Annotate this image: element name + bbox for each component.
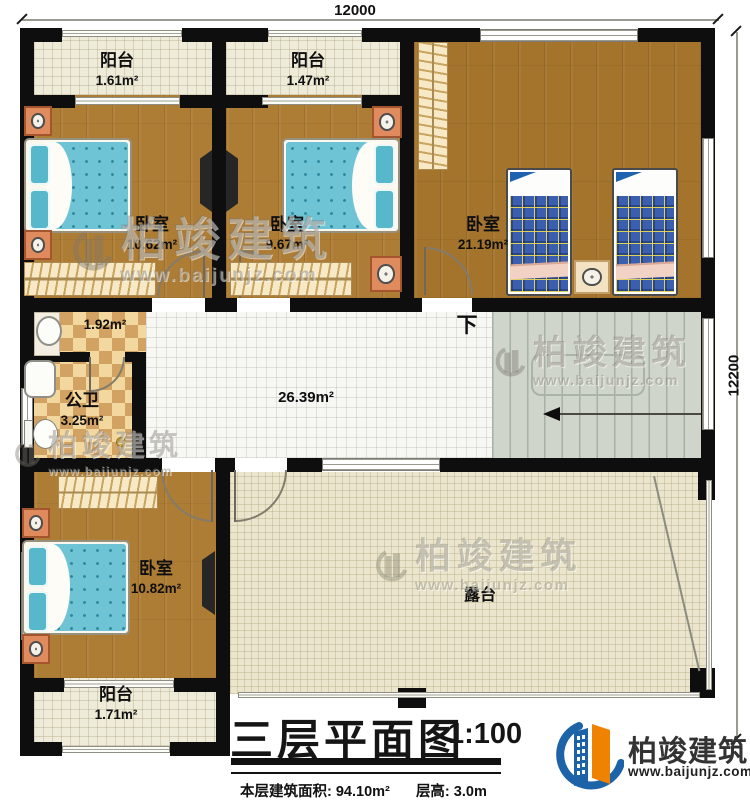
balcony-railing	[62, 30, 182, 37]
window	[702, 318, 714, 430]
window	[322, 458, 440, 471]
watermark-logo-icon	[68, 230, 112, 274]
watermark-name: 柏竣建筑	[120, 216, 333, 262]
room-name: 阳台	[66, 684, 166, 706]
title-underline-thick	[231, 758, 501, 765]
room-name: 卧室	[433, 214, 533, 236]
lamp-icon	[377, 264, 394, 284]
watermark-url: www.baijunjz.com	[533, 373, 691, 389]
watermark: 柏竣建筑 www.baijunjz.com	[492, 336, 691, 389]
window	[702, 138, 714, 258]
watermark-url: www.baijunjz.com	[120, 265, 333, 287]
room-label-balcony-top-mid: 阳台 1.47m²	[258, 50, 358, 90]
twin-bed	[612, 168, 678, 296]
lamp-icon	[582, 268, 602, 287]
wall-segment	[20, 678, 64, 692]
room-label-hallway: 26.39m²	[256, 388, 356, 408]
wall-segment	[180, 95, 268, 108]
room-area: 1.61m²	[67, 72, 167, 90]
title-underline-thin	[231, 772, 501, 774]
wall-segment	[290, 298, 422, 312]
watermark: 柏竣建筑 www.baijunjz.com	[12, 432, 183, 478]
wall-segment	[440, 458, 715, 472]
door-leaf	[234, 470, 236, 522]
room-name: 阳台	[258, 50, 358, 72]
dimension-width-label: 12000	[322, 2, 388, 19]
terrace-railing	[706, 480, 712, 690]
down-label: 下	[452, 312, 482, 339]
nightstand	[574, 260, 610, 294]
wall-segment	[216, 472, 230, 678]
door-leaf	[424, 247, 426, 295]
tv	[226, 150, 238, 212]
blanket-trim	[616, 261, 674, 279]
watermark-logo-icon	[492, 346, 525, 379]
nightstand	[372, 106, 402, 138]
watermark-name: 柏竣建筑	[533, 336, 691, 370]
sliding-door	[262, 97, 362, 105]
stair-direction-arrow	[543, 407, 560, 421]
stair-direction-line	[560, 413, 701, 415]
wall-segment	[400, 28, 414, 298]
door-leaf	[211, 470, 213, 522]
room-label-balcony-top-left: 阳台 1.61m²	[67, 50, 167, 90]
wardrobe	[418, 42, 448, 170]
floor-hallway	[146, 312, 492, 458]
bed-pillow	[27, 591, 48, 632]
bed-pillow	[374, 144, 395, 185]
room-name: 公卫	[47, 390, 117, 412]
terrace-post	[398, 688, 426, 708]
wall-segment	[472, 298, 715, 312]
floor-area-text: 本层建筑面积: 94.10m²	[240, 784, 390, 800]
wall-segment	[205, 298, 237, 312]
watermark-logo-icon	[372, 549, 407, 584]
room-area: 3.25m²	[47, 412, 117, 430]
wardrobe	[58, 476, 158, 509]
watermark-name: 柏竣建筑	[48, 432, 183, 461]
nightstand	[24, 106, 52, 136]
room-name: 阳台	[67, 50, 167, 72]
lamp-icon	[29, 641, 44, 657]
room-area: 21.19m²	[433, 236, 533, 254]
room-area: 1.92m²	[70, 316, 140, 334]
wall-segment	[20, 742, 62, 756]
room-area: 26.39m²	[256, 388, 356, 408]
brand-website: www.baijunjz.com	[628, 764, 750, 779]
watermark-logo-icon	[12, 441, 40, 469]
floor-plan-sheet: 阳台 1.61m² 阳台 1.47m² 卧室 10.62m² 卧室 9.67m²…	[0, 0, 750, 803]
watermark: 柏竣建筑 www.baijunjz.com	[68, 216, 333, 287]
room-label-balcony-bottom: 阳台 1.71m²	[66, 684, 166, 724]
sliding-door	[75, 97, 180, 105]
room-label-washbasin: 1.92m²	[70, 316, 140, 334]
watermark: 柏竣建筑 www.baijunjz.com	[372, 538, 582, 594]
floor-area-info: 本层建筑面积: 94.10m² 层高: 3.0m	[240, 780, 487, 801]
nightstand	[24, 230, 52, 260]
plan-scale: 1:100	[448, 718, 522, 751]
bed-pillow	[29, 189, 50, 230]
nightstand	[370, 256, 402, 292]
bed-pillow	[374, 189, 395, 230]
terrace-railing	[238, 692, 700, 698]
balcony-railing	[62, 746, 170, 753]
lamp-icon	[379, 113, 395, 130]
lamp-icon	[31, 237, 46, 253]
room-area: 10.82m²	[106, 580, 206, 598]
wall-segment	[287, 458, 322, 472]
window	[480, 29, 638, 42]
watermark-url: www.baijunjz.com	[48, 464, 183, 478]
wall-segment	[174, 678, 230, 692]
dimension-line-top	[22, 19, 719, 21]
room-area: 1.71m²	[66, 706, 166, 724]
wall-segment	[215, 458, 235, 472]
room-name: 卧室	[106, 558, 206, 580]
nightstand	[22, 634, 50, 664]
bed-pillow	[29, 144, 50, 185]
tv	[200, 150, 212, 212]
brand-logo-icon	[546, 716, 624, 798]
wall-segment	[170, 742, 230, 756]
wall-segment	[362, 28, 480, 42]
watermark-name: 柏竣建筑	[415, 538, 582, 574]
watermark-url: www.baijunjz.com	[415, 577, 582, 594]
lamp-icon	[29, 515, 44, 531]
dimension-height-label: 12200	[726, 344, 743, 408]
door-leaf	[89, 357, 91, 392]
room-label-bathroom: 公卫 3.25m²	[47, 390, 117, 430]
room-label-bedroom-bottom: 卧室 10.82m²	[106, 558, 206, 598]
balcony-railing	[268, 30, 362, 37]
sink	[36, 316, 62, 346]
stairs-direction-label: 下	[452, 312, 482, 339]
blanket-trim	[510, 261, 568, 279]
nightstand	[22, 508, 50, 538]
floor-height-text: 层高: 3.0m	[416, 784, 487, 800]
lamp-icon	[31, 113, 46, 129]
wall-segment	[20, 298, 152, 312]
room-area: 1.47m²	[258, 72, 358, 90]
bed-pillow	[27, 546, 48, 587]
room-label-bedroom-top-right: 卧室 21.19m²	[433, 214, 533, 254]
